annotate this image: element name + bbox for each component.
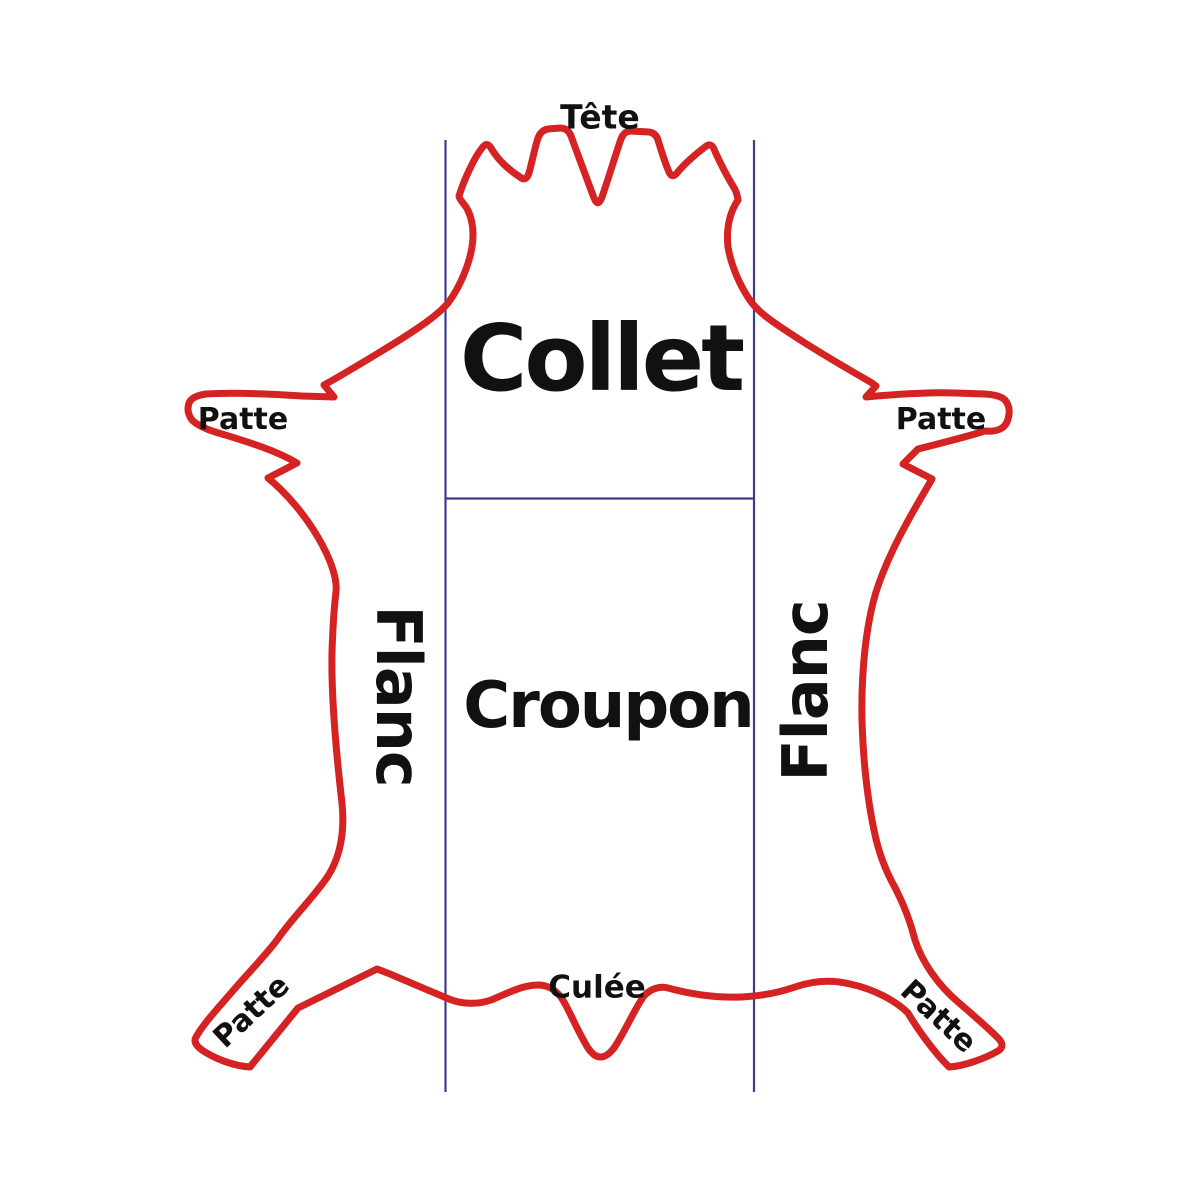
- label-patte-front-right: Patte: [896, 405, 986, 435]
- hide-diagram-svg: [0, 0, 1200, 1200]
- label-flanc-left: Flanc: [367, 605, 429, 786]
- hide-outline: [188, 128, 1009, 1067]
- label-culee: Culée: [548, 973, 646, 1004]
- section-divider-lines: [446, 140, 755, 1092]
- label-flanc-right: Flanc: [775, 600, 837, 781]
- label-tete: Tête: [560, 101, 640, 134]
- label-patte-front-left: Patte: [198, 405, 288, 435]
- hide-cuts-diagram: Tête Collet Patte Patte Flanc Flanc Crou…: [0, 0, 1200, 1200]
- label-croupon: Croupon: [463, 674, 752, 738]
- label-collet: Collet: [460, 313, 742, 405]
